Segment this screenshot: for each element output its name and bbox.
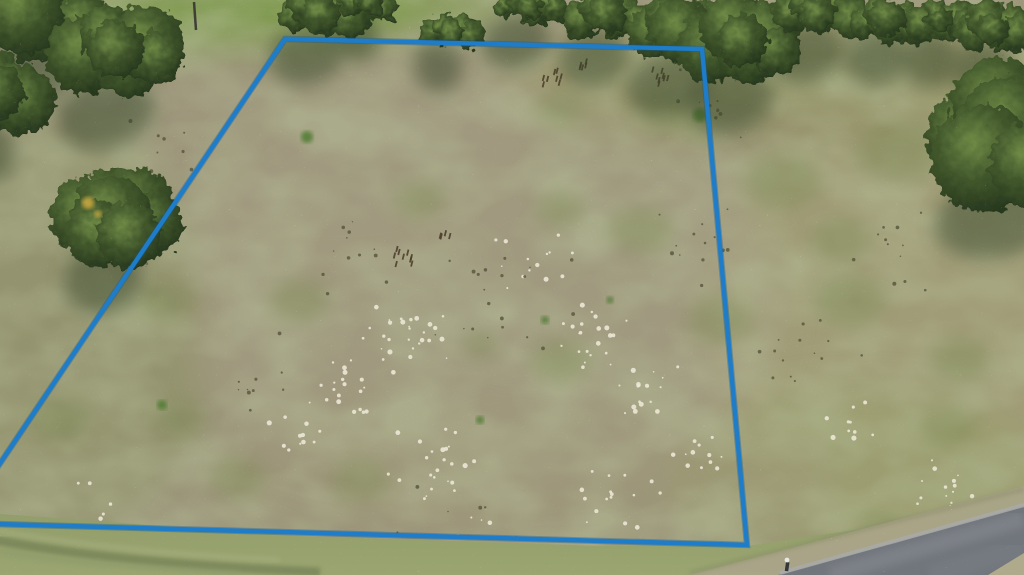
aerial-photo bbox=[0, 0, 1024, 575]
aerial-photo-stage bbox=[0, 0, 1024, 575]
grain-dark bbox=[0, 0, 1024, 575]
